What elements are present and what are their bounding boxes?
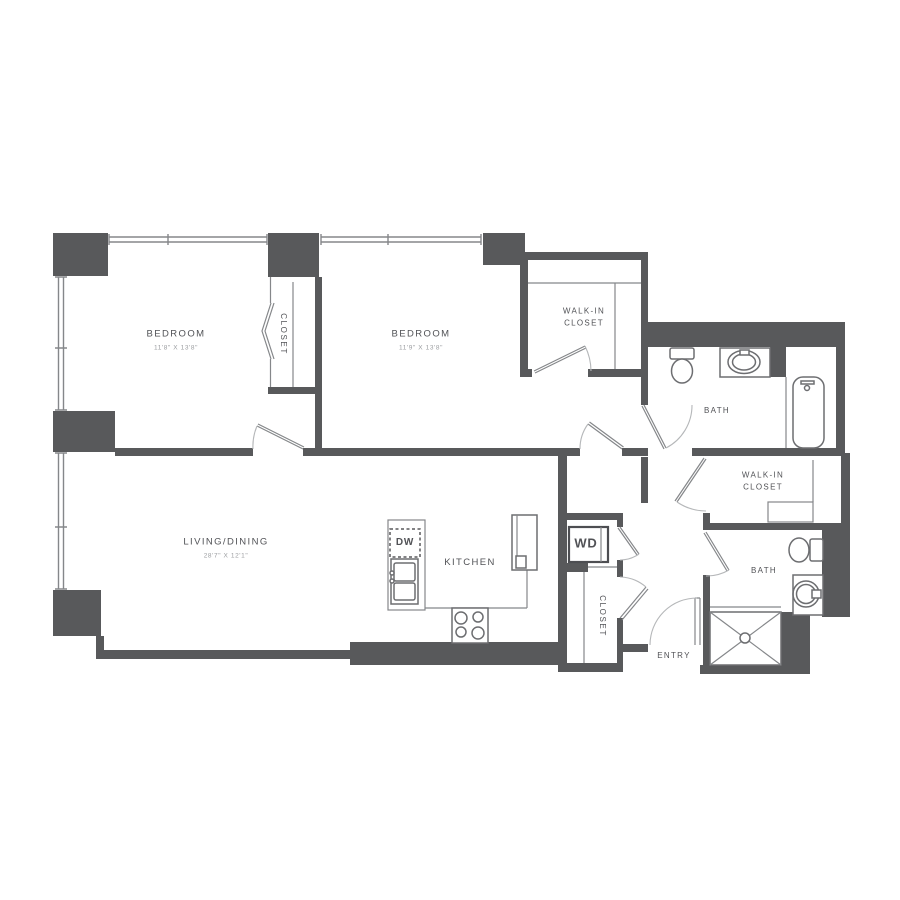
wall-segment bbox=[303, 448, 580, 456]
room-label-bath-1: BATH bbox=[704, 405, 730, 417]
bedroom2-door-leaf bbox=[588, 422, 624, 449]
wall-segment bbox=[520, 252, 645, 260]
walkin-closet1-door-leaf bbox=[534, 346, 586, 373]
bedroom1-door-leaf bbox=[257, 424, 304, 449]
sink-faucet-knob bbox=[390, 571, 394, 575]
window bbox=[55, 453, 67, 589]
room-label-entry: ENTRY bbox=[657, 650, 690, 662]
room-label-bedroom-1: BEDROOM 11'8" X 13'8" bbox=[147, 314, 206, 367]
bath1-door-leaf bbox=[642, 405, 666, 449]
wall-segment bbox=[703, 523, 842, 530]
wall-segment bbox=[622, 448, 648, 456]
bathtub-fixture bbox=[793, 377, 824, 448]
sink-faucet bbox=[740, 350, 749, 355]
room-label-bedroom-2: BEDROOM 11'9" X 13'8" bbox=[392, 314, 451, 367]
walkin-closet2-door-swing bbox=[677, 502, 706, 511]
room-label-living-dining: LIVING/DINING 28'7" X 12'1" bbox=[183, 522, 268, 575]
sink-faucet bbox=[812, 590, 821, 598]
wall-segment bbox=[822, 523, 841, 575]
wall-segment bbox=[558, 456, 567, 663]
wall-segment bbox=[703, 575, 710, 668]
doors bbox=[253, 303, 729, 645]
entry-door-leaf bbox=[695, 598, 700, 645]
wall-segment bbox=[836, 347, 845, 453]
wall-segment bbox=[520, 252, 528, 377]
wall-segment bbox=[588, 369, 645, 377]
wall-segment bbox=[692, 448, 845, 456]
washer-dryer-door-leaf bbox=[618, 527, 639, 555]
bath1-fixtures bbox=[670, 348, 824, 448]
wall-segment bbox=[641, 252, 648, 326]
closet-shelf bbox=[768, 502, 813, 522]
room-name: BEDROOM bbox=[392, 328, 451, 339]
bedroom-closet-bifold-door bbox=[262, 303, 274, 359]
washer-dryer-label: WD bbox=[574, 535, 597, 554]
wall-segment bbox=[781, 612, 810, 668]
room-label-hall-closet: CLOSET bbox=[596, 595, 608, 637]
room-name: LIVING/DINING bbox=[183, 536, 268, 547]
bedroom2-door-swing bbox=[580, 424, 588, 449]
tub-faucet bbox=[801, 381, 814, 384]
wall-segment bbox=[520, 369, 532, 377]
wall-segment bbox=[53, 590, 101, 636]
room-name: BEDROOM bbox=[147, 328, 206, 339]
wall-segment bbox=[53, 233, 108, 276]
room-dimensions: 11'9" X 13'8" bbox=[392, 343, 451, 352]
room-label-bedroom-closet: CLOSET bbox=[277, 313, 289, 355]
room-label-walk-in-closet-2: WALK-IN CLOSET bbox=[742, 469, 784, 492]
room-label-kitchen: KITCHEN bbox=[444, 556, 496, 570]
toilet-fixture bbox=[789, 538, 809, 562]
bedroom1-door-swing bbox=[253, 426, 257, 449]
wall-segment bbox=[268, 387, 322, 394]
window bbox=[321, 234, 481, 245]
wall-segment bbox=[623, 644, 648, 652]
walkin-closet1-door-swing bbox=[585, 346, 591, 371]
wall-segment bbox=[268, 233, 319, 277]
wall-segment bbox=[483, 233, 525, 265]
hall-closet-door-leaf bbox=[620, 587, 648, 620]
room-dimensions: 11'8" X 13'8" bbox=[147, 343, 206, 352]
wall-segment bbox=[822, 575, 841, 617]
entry-door-swing bbox=[650, 598, 697, 645]
bath1-door-swing bbox=[666, 405, 692, 448]
room-label-walk-in-closet-1: WALK-IN CLOSET bbox=[563, 305, 605, 328]
floor-plan: BEDROOM 11'8" X 13'8" BEDROOM 11'9" X 13… bbox=[0, 0, 900, 900]
wall-segment bbox=[770, 347, 786, 377]
shower-drain bbox=[740, 633, 750, 643]
room-label-bath-2: BATH bbox=[751, 565, 777, 577]
wall-segment bbox=[350, 642, 558, 665]
hall-closet-door-swing bbox=[620, 577, 646, 587]
toilet-tank bbox=[670, 348, 694, 359]
walkin-closet2-door-leaf bbox=[675, 458, 706, 502]
window bbox=[109, 234, 267, 245]
washer-dryer-door-swing bbox=[620, 554, 639, 560]
wall-segment bbox=[115, 448, 253, 456]
wall-segment bbox=[315, 277, 322, 448]
toilet-fixture bbox=[672, 359, 693, 383]
bath2-door-leaf bbox=[704, 532, 729, 571]
wall-segment bbox=[700, 665, 810, 674]
wall-segment bbox=[641, 457, 648, 503]
wall-segment bbox=[617, 513, 623, 527]
room-dimensions: 28'7" X 12'1" bbox=[183, 551, 268, 560]
kitchen-counter-edge bbox=[425, 570, 527, 608]
dishwasher-label: DW bbox=[396, 536, 414, 551]
sink-faucet-knob bbox=[390, 579, 394, 583]
wall-segment bbox=[558, 563, 588, 572]
wall-segment bbox=[558, 663, 623, 672]
wall-segment bbox=[53, 411, 115, 452]
wall-segment bbox=[617, 560, 623, 577]
wall-segment bbox=[567, 513, 623, 520]
wall-segment bbox=[98, 650, 352, 659]
floor-plan-drawing bbox=[0, 0, 900, 900]
window bbox=[55, 277, 67, 410]
wall-segment bbox=[841, 453, 850, 617]
wall-segment bbox=[641, 322, 845, 347]
toilet-tank bbox=[810, 539, 823, 561]
